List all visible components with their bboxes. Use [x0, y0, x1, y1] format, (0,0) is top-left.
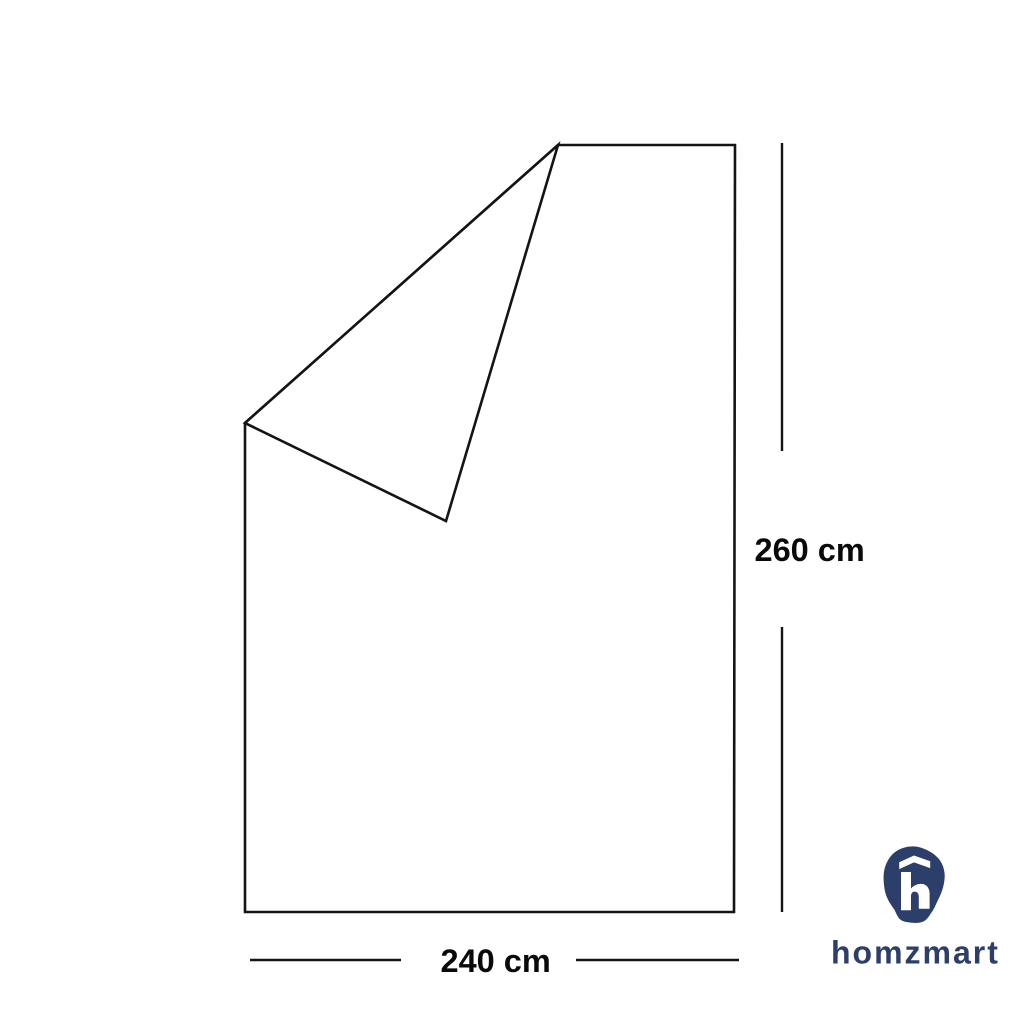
svg-text:homzmart: homzmart [831, 935, 1000, 971]
svg-text:260 cm: 260 cm [755, 532, 865, 568]
svg-text:240 cm: 240 cm [441, 943, 551, 979]
